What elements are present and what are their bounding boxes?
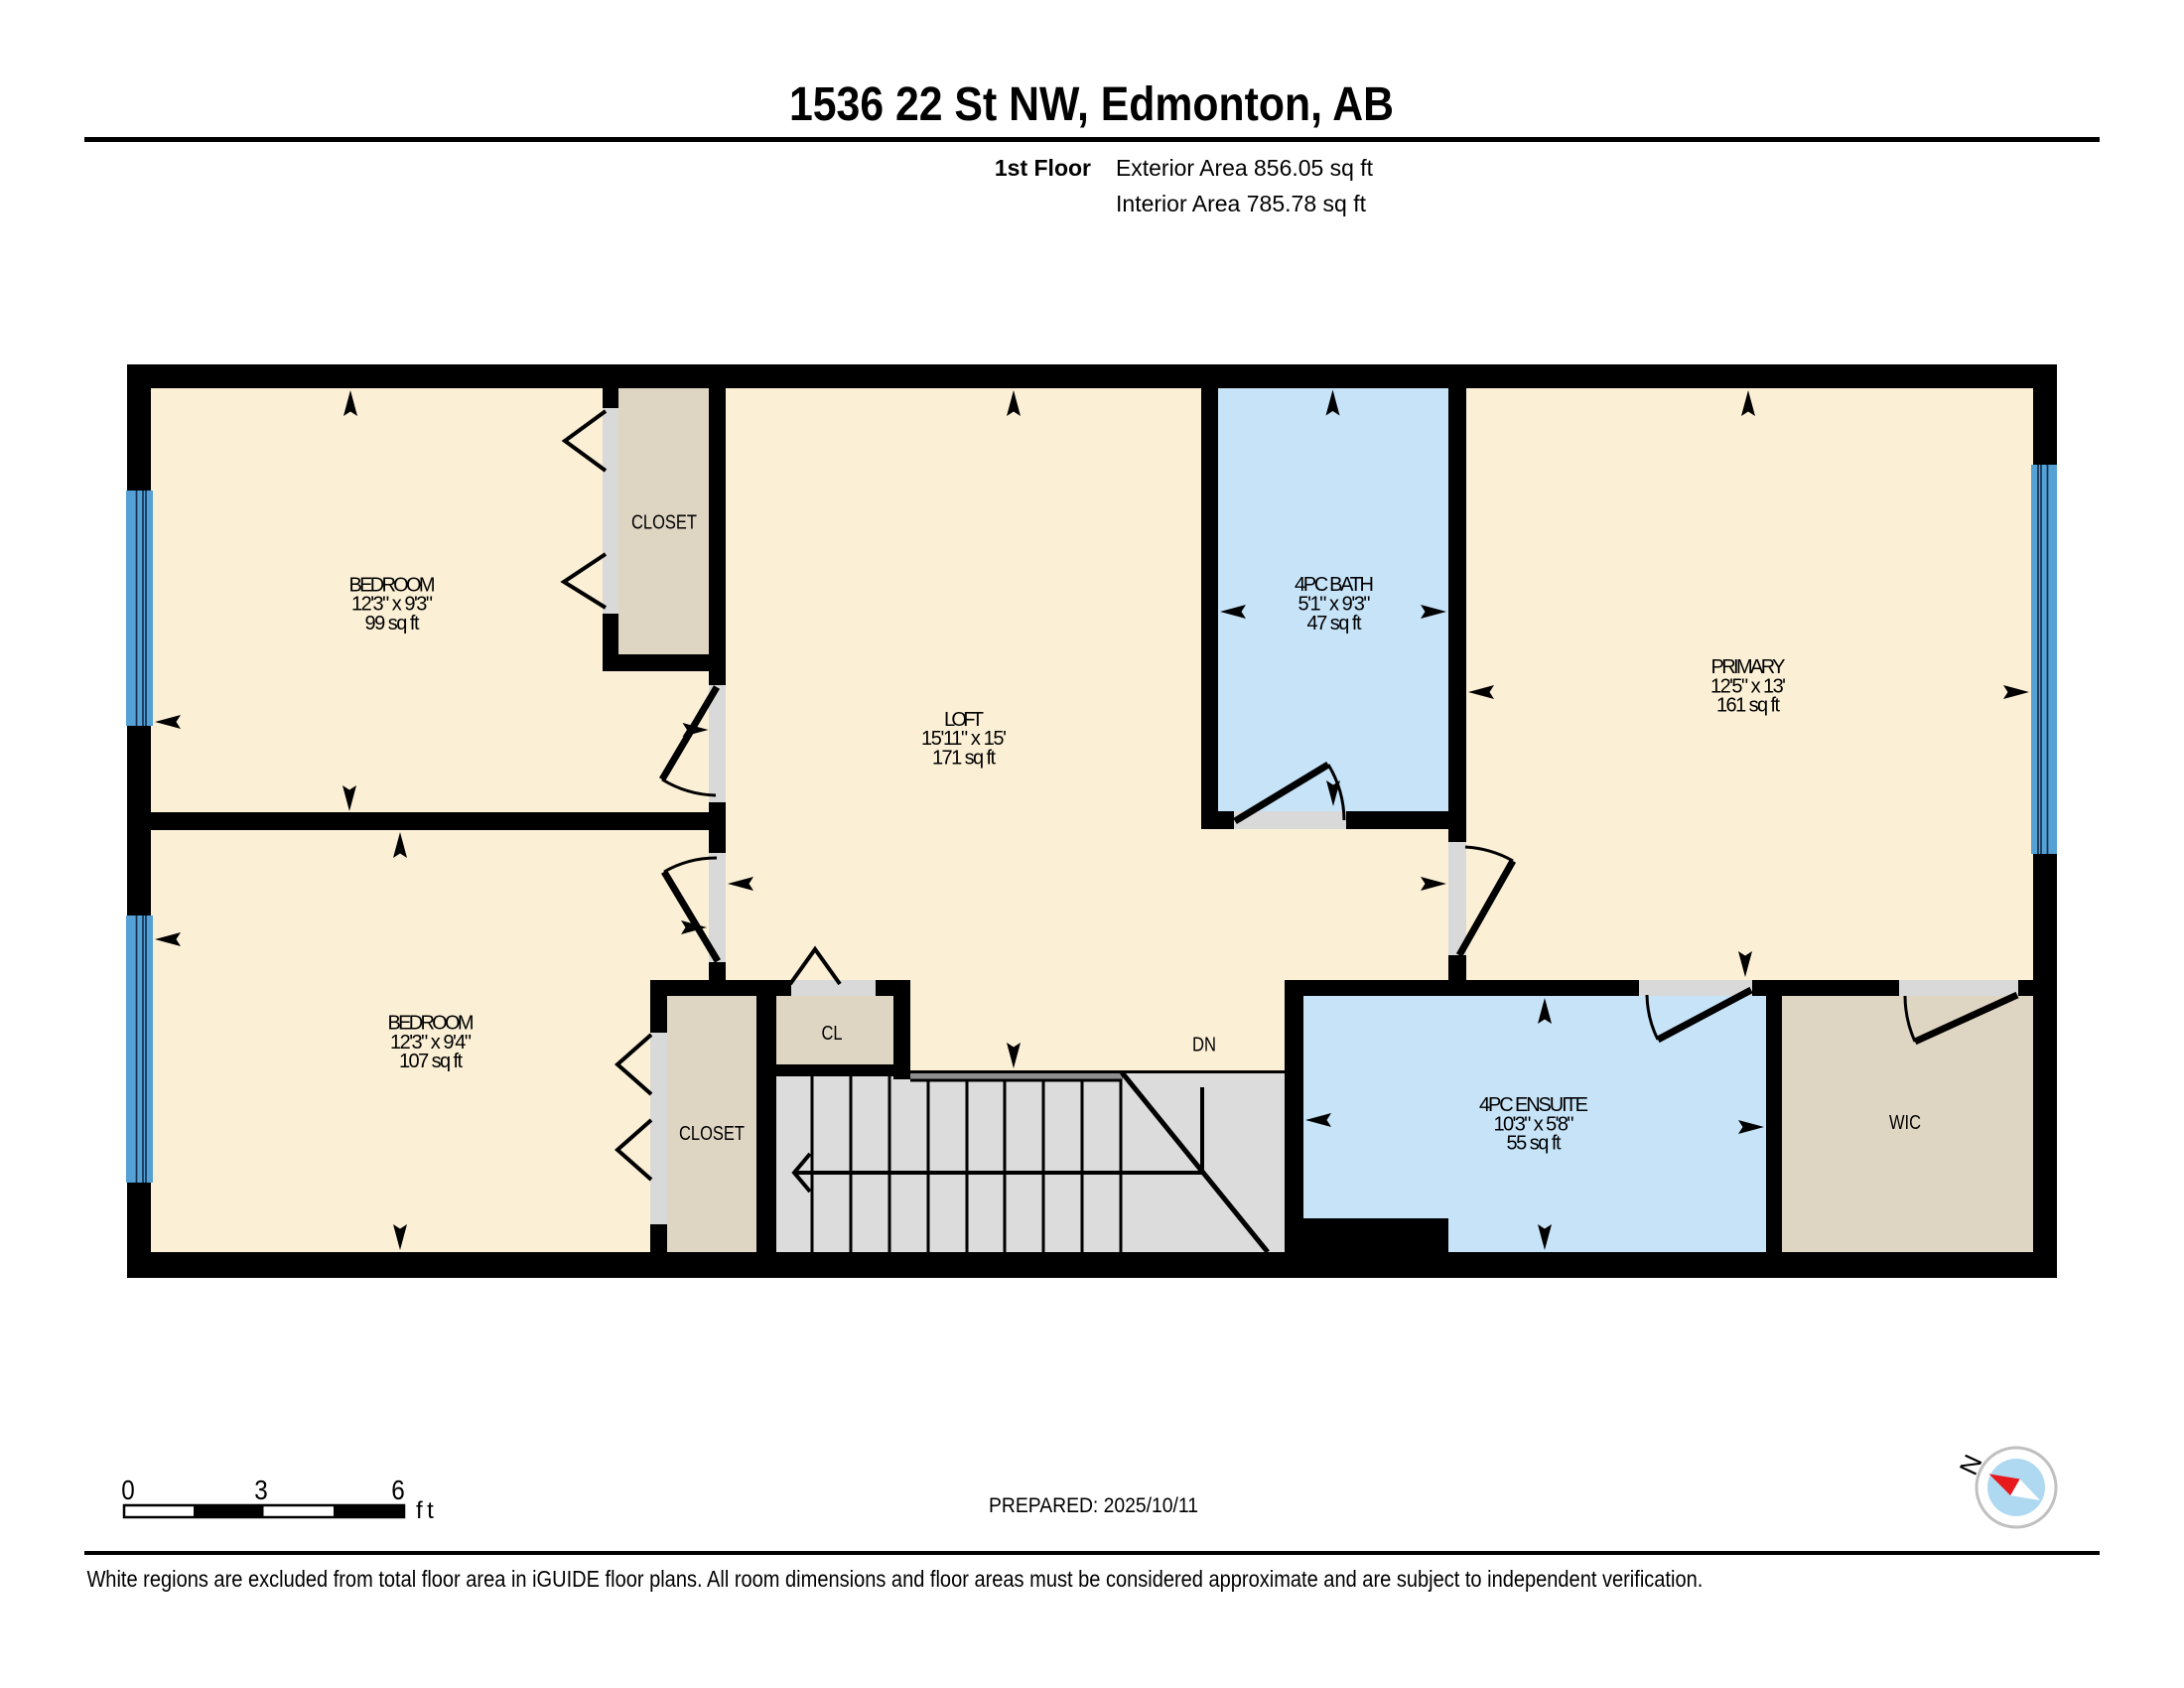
svg-text:0: 0 [121,1475,135,1505]
svg-text:Interior Area 785.78 sq ft: Interior Area 785.78 sq ft [1116,191,1367,216]
svg-text:107 sq ft: 107 sq ft [399,1051,463,1072]
svg-text:CL: CL [822,1023,843,1045]
svg-text:99 sq ft: 99 sq ft [365,613,420,634]
svg-text:Exterior Area 856.05 sq ft: Exterior Area 856.05 sq ft [1116,155,1374,181]
svg-text:CLOSET: CLOSET [679,1123,745,1145]
svg-text:W: W [87,1566,107,1592]
svg-text:DN: DN [1192,1035,1216,1056]
svg-text:ft: ft [416,1497,438,1524]
svg-text:6: 6 [391,1475,405,1505]
svg-text:3: 3 [254,1475,268,1505]
svg-text:CLOSET: CLOSET [631,511,697,533]
svg-text:161 sq ft: 161 sq ft [1716,695,1780,717]
svg-text:hite regions are excluded from: hite regions are excluded from total flo… [105,1566,1703,1592]
svg-text:55 sq ft: 55 sq ft [1507,1133,1562,1155]
svg-text:47 sq ft: 47 sq ft [1307,613,1362,634]
svg-text:1536 22 St NW, Edmonton, AB: 1536 22 St NW, Edmonton, AB [789,78,1394,131]
svg-text:PREPARED: 2025/10/11: PREPARED: 2025/10/11 [989,1494,1198,1517]
svg-text:1st Floor: 1st Floor [995,155,1091,181]
svg-text:171 sq ft: 171 sq ft [932,747,996,769]
svg-text:WIC: WIC [1889,1112,1921,1134]
